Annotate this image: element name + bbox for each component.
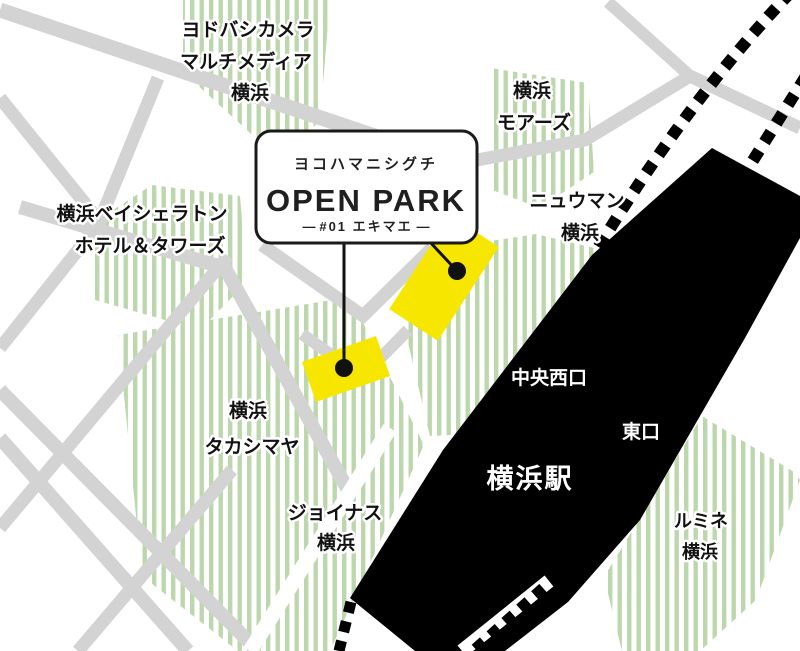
callout-subtitle-label: #01 エキマエ (319, 219, 412, 234)
label-takashimaya-1: 横浜 (229, 399, 267, 422)
yokohama-station-area-map: ヨコハマニシグチ OPEN PARK ― #01 エキマエ ― ヨドバシカメラ … (0, 0, 800, 651)
callout-dash-right: ― (417, 219, 432, 234)
openpark-callout-card: ヨコハマニシグチ OPEN PARK ― #01 エキマエ ― (256, 131, 477, 243)
label-yodobashi-1: ヨドバシカメラ (181, 19, 314, 41)
label-moores-1: 横浜 (513, 79, 551, 102)
label-newoman-2: 横浜 (561, 221, 599, 244)
marker-dot-east-icon (448, 262, 466, 280)
label-joinus-2: 横浜 (317, 531, 355, 554)
label-station-name: 横浜駅 (487, 464, 574, 494)
label-sheraton-2: ホテル＆タワーズ (74, 234, 225, 257)
marker-dot-west-icon (335, 359, 353, 377)
callout-dash-left: ― (303, 219, 318, 234)
label-sheraton-1: 横浜ベイシェラトン (56, 202, 227, 225)
label-newoman-1: ニュウマン (529, 190, 624, 212)
callout-kana-label: ヨコハマニシグチ (294, 155, 438, 173)
label-takashimaya-2: タカシマヤ (204, 436, 299, 458)
label-exit-east: 東口 (622, 420, 660, 443)
label-yodobashi-2: マルチメディア (180, 50, 312, 73)
label-lumine-2: 横浜 (682, 541, 718, 562)
label-exit-central-west: 中央西口 (511, 366, 587, 389)
label-yodobashi-3: 横浜 (231, 81, 269, 104)
map-canvas: ヨコハマニシグチ OPEN PARK ― #01 エキマエ ― ヨドバシカメラ … (0, 0, 800, 651)
label-lumine-1: ルミネ (674, 511, 728, 531)
label-joinus-1: ジョイナス (288, 503, 383, 524)
callout-title-label: OPEN PARK (266, 183, 466, 218)
label-moores-2: モアーズ (497, 111, 571, 134)
